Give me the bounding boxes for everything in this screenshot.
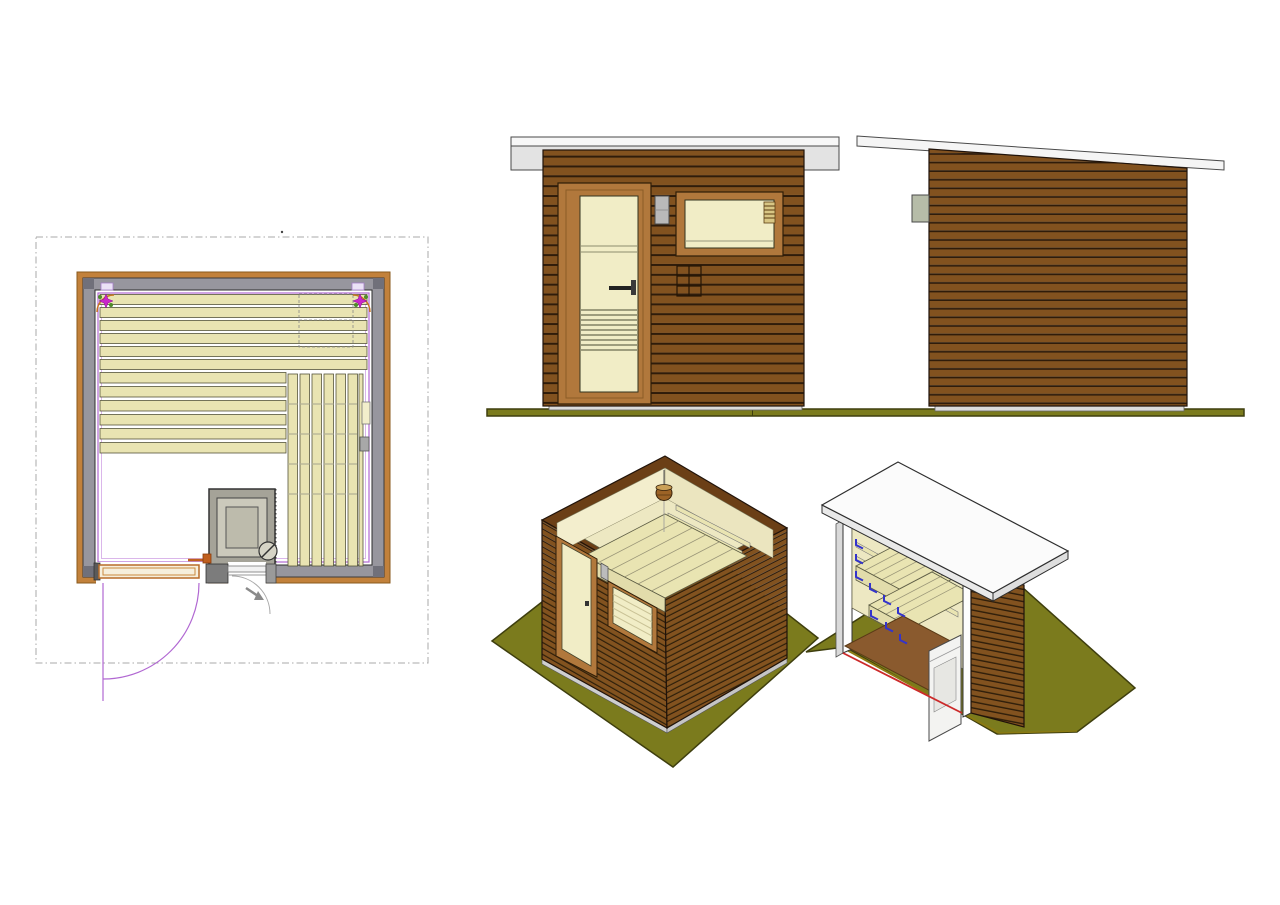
cut-wall-exterior-sliver xyxy=(836,520,843,657)
side-elevation xyxy=(857,136,1224,411)
door-handle xyxy=(609,286,634,290)
sauna-heater xyxy=(929,635,961,741)
wall-sensor-box xyxy=(360,437,369,451)
sauna-stove xyxy=(209,489,277,566)
front-elevation xyxy=(511,137,839,410)
isometric-views xyxy=(470,430,1170,805)
corner-stud xyxy=(83,278,94,289)
floor-plan-view xyxy=(30,225,440,705)
door-leaf xyxy=(99,565,199,578)
cut-wall-face-right xyxy=(963,573,971,717)
window xyxy=(676,192,783,256)
plan-reference-tick xyxy=(281,231,283,233)
door-swing-arc xyxy=(103,583,199,701)
elevations-view xyxy=(480,120,1250,420)
wall-fixture-panel xyxy=(362,402,370,424)
corner-stud xyxy=(373,278,384,289)
drawing-sheet xyxy=(0,0,1280,905)
wall-block xyxy=(266,564,276,583)
roof-fascia xyxy=(511,137,839,146)
glazed-door xyxy=(558,183,651,404)
isometric-cutaway xyxy=(806,462,1135,741)
wall-lamp xyxy=(912,195,929,222)
cut-wall-face-left xyxy=(843,516,852,653)
door-handle xyxy=(585,601,589,606)
corner-stud xyxy=(83,566,94,577)
wall-block xyxy=(206,564,228,583)
window-vent-insert xyxy=(764,202,775,223)
isometric-open-top xyxy=(492,456,818,767)
window-plan xyxy=(228,566,266,572)
corner-stud xyxy=(373,566,384,577)
iso-door xyxy=(556,536,597,677)
wall-cladding-slats xyxy=(929,149,1187,407)
